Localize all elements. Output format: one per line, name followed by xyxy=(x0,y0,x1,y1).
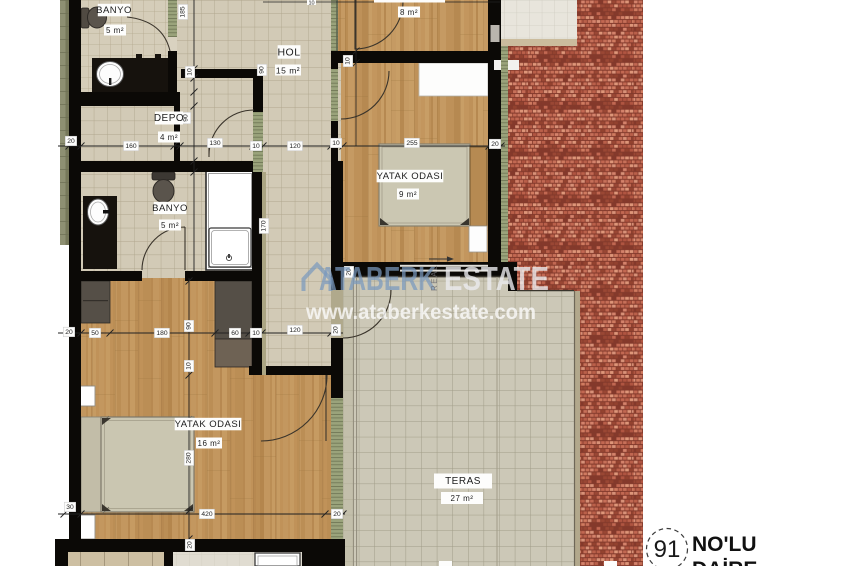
svg-text:9 m²: 9 m² xyxy=(399,190,417,199)
svg-text:YATAK ODASI: YATAK ODASI xyxy=(377,171,444,182)
svg-text:91: 91 xyxy=(654,536,681,563)
svg-text:10: 10 xyxy=(332,140,340,147)
svg-text:ESTATE: ESTATE xyxy=(444,260,549,297)
svg-text:20: 20 xyxy=(65,329,73,336)
svg-text:10: 10 xyxy=(187,68,194,76)
svg-text:20: 20 xyxy=(67,138,75,145)
svg-text:255: 255 xyxy=(406,140,417,147)
svg-text:www.ataberkestate.com: www.ataberkestate.com xyxy=(305,301,536,324)
svg-text:20: 20 xyxy=(491,141,499,148)
svg-text:280: 280 xyxy=(186,452,193,463)
svg-text:YATAK ODASI: YATAK ODASI xyxy=(175,419,242,430)
svg-text:120: 120 xyxy=(289,143,300,150)
svg-text:30: 30 xyxy=(66,504,74,511)
svg-text:15 m²: 15 m² xyxy=(276,66,300,76)
svg-text:ATABERK: ATABERK xyxy=(319,260,436,297)
svg-text:HOL: HOL xyxy=(277,47,300,59)
svg-text:16 m²: 16 m² xyxy=(198,439,221,448)
svg-text:170: 170 xyxy=(261,220,268,231)
svg-text:50: 50 xyxy=(91,330,99,337)
svg-text:REAL: REAL xyxy=(430,264,439,291)
svg-text:20: 20 xyxy=(333,511,341,518)
svg-text:8 m²: 8 m² xyxy=(400,8,418,17)
svg-text:185: 185 xyxy=(180,6,187,17)
svg-text:10: 10 xyxy=(186,362,193,370)
svg-text:27 m²: 27 m² xyxy=(451,494,474,503)
svg-text:180: 180 xyxy=(156,330,167,337)
svg-text:DEPO: DEPO xyxy=(154,113,184,124)
svg-text:10: 10 xyxy=(308,0,314,6)
svg-text:TERAS: TERAS xyxy=(445,476,481,487)
svg-text:5 m²: 5 m² xyxy=(161,221,179,230)
svg-text:10: 10 xyxy=(252,330,260,337)
svg-text:DAİRE: DAİRE xyxy=(692,558,757,566)
svg-text:4 m²: 4 m² xyxy=(160,133,178,142)
svg-text:130: 130 xyxy=(209,140,220,147)
svg-text:10: 10 xyxy=(252,143,260,150)
svg-text:420: 420 xyxy=(201,511,212,518)
svg-text:160: 160 xyxy=(125,143,136,150)
svg-text:NO'LU: NO'LU xyxy=(692,533,757,556)
svg-text:20: 20 xyxy=(333,326,340,334)
svg-text:BANYO: BANYO xyxy=(152,203,188,214)
svg-text:10: 10 xyxy=(345,57,352,65)
svg-text:5 m²: 5 m² xyxy=(106,26,124,35)
svg-text:BANYO: BANYO xyxy=(96,5,132,16)
svg-text:90: 90 xyxy=(186,322,193,330)
svg-text:90: 90 xyxy=(259,66,266,74)
svg-text:120: 120 xyxy=(289,327,300,334)
svg-text:20: 20 xyxy=(187,541,194,549)
svg-text:60: 60 xyxy=(231,330,239,337)
